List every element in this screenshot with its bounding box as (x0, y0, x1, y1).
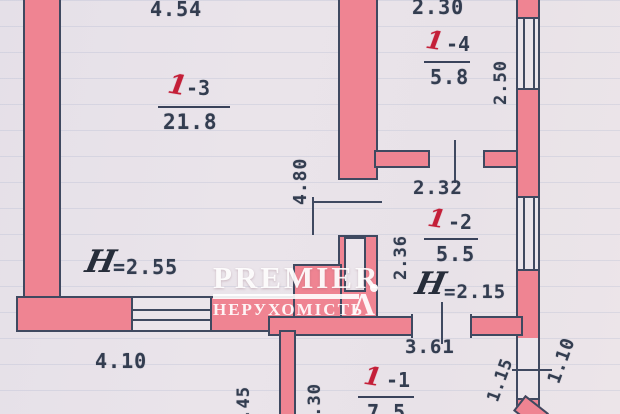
dim-bottom-left-depth: 2.45 (234, 369, 254, 414)
room1-number: 1 (362, 361, 384, 392)
room1-area: 7.5 (367, 400, 406, 414)
wall-middle-upper (338, 0, 378, 180)
room2-number: 1 (426, 203, 448, 234)
room3-number-suffix: -3 (186, 76, 210, 100)
window-glass-lines (523, 198, 535, 269)
dim-top-width-right: 2.30 (412, 0, 464, 19)
room1-underline (358, 396, 414, 398)
dim-right-opening-inner: 1.15 (483, 355, 517, 404)
room3-height-value: =2.55 (113, 255, 178, 279)
window-glass-lines (133, 309, 210, 321)
wall-room4-bottom-right (483, 150, 520, 168)
watermark-logo-dot (370, 284, 378, 292)
room3-area: 21.8 (163, 110, 218, 134)
floor-plan: 4.54 2.30 4.80 2.50 2.32 2.36 3.61 4.10 … (0, 0, 620, 414)
dim-room3-depth: 4.80 (290, 113, 311, 205)
dim-bottom-center-depth: 2.30 (305, 366, 325, 414)
door-tick-middle-v (312, 197, 314, 235)
wall-right-middle (516, 88, 540, 198)
window-glass-lines (523, 19, 535, 88)
dim-room4-depth: 2.50 (491, 49, 511, 105)
room3-underline (158, 106, 230, 108)
room1-number-suffix: -1 (386, 368, 410, 392)
wall-bottom-center (279, 330, 296, 414)
dim-right-opening-outer: 1.10 (544, 335, 580, 387)
dim-room1-width: 3.61 (405, 336, 455, 358)
dim-top-width-left: 4.54 (150, 0, 202, 21)
window-room3-bottom (131, 296, 212, 332)
room2-area: 5.5 (436, 242, 475, 266)
dim-room2-depth: 2.36 (391, 226, 411, 280)
room4-number-suffix: -4 (446, 32, 470, 56)
room2-number-suffix: -2 (448, 210, 472, 234)
room2-underline (424, 238, 478, 240)
door-tick-middle-h (312, 201, 382, 203)
window-room4 (516, 17, 540, 90)
window-room2 (516, 196, 540, 271)
dim-corridor-width: 2.32 (413, 177, 463, 199)
watermark-underline (213, 294, 359, 299)
wall-left-exterior (23, 0, 61, 298)
dim-bottom-left-width: 4.10 (95, 349, 147, 373)
wall-room4-bottom-left (374, 150, 430, 168)
room2-height-value: =2.15 (444, 281, 506, 303)
watermark-tagline: НЕРУХОМІСТЬ (213, 300, 364, 320)
room4-underline (424, 61, 470, 63)
room4-area: 5.8 (430, 65, 469, 89)
room4-number: 1 (424, 25, 446, 56)
